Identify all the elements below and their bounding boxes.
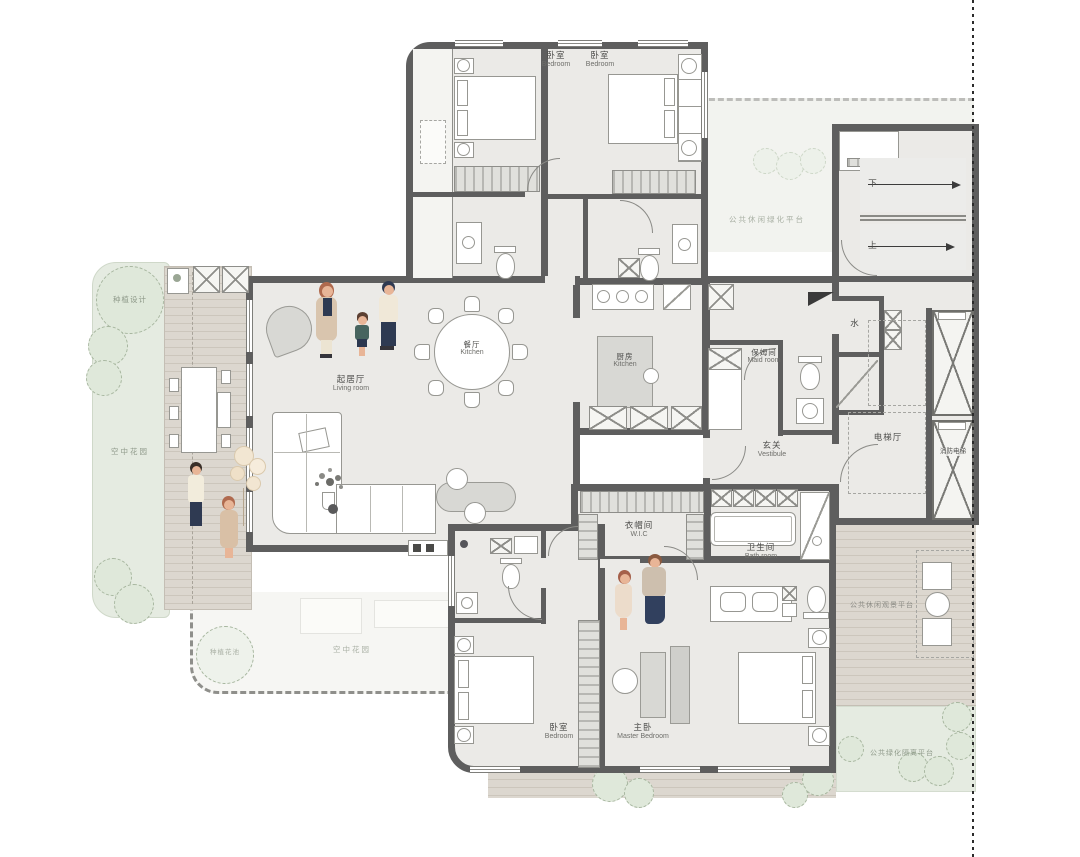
floor-plan: 公共休闲绿化平台 种植设计 空中花园 种植花池 空中花园 公共休闲观景平台 公共… [0, 0, 1080, 857]
label-garden-left: 空中花园 [98, 446, 162, 457]
label-fire-elevator: 消防电梯 [938, 448, 968, 456]
sofa-cushion-line [402, 486, 403, 532]
label-bath-cn: 卫生间 [747, 542, 776, 552]
outdoor-table-ext [217, 392, 231, 428]
closet-cell [711, 489, 732, 507]
opening [571, 318, 582, 402]
label-garden-bottom: 空中花园 [326, 644, 378, 655]
desk-shelf [670, 646, 690, 724]
dining-chair [428, 380, 444, 396]
tree [942, 702, 972, 732]
label-vestibule-en: Vestibule [740, 451, 804, 460]
dining-chair [464, 392, 480, 408]
wardrobe [580, 491, 704, 513]
stair-label-up: 上 [866, 240, 880, 251]
dining-chair [498, 308, 514, 324]
label-master-en: Master Bedroom [598, 733, 688, 742]
outdoor-chair [221, 370, 231, 384]
toilet [496, 253, 515, 279]
label-dining-en: Kitchen [444, 349, 500, 358]
deck-chair [922, 562, 952, 590]
wall [448, 618, 546, 623]
sink [462, 236, 475, 249]
dried-plant [230, 466, 245, 481]
person-father-shirt [379, 295, 398, 323]
person-wife-legs [620, 618, 627, 630]
fridge [708, 284, 734, 310]
pillow [457, 80, 468, 106]
label-vestibule-cn: 玄关 [762, 440, 781, 450]
tree [946, 732, 974, 760]
label-wic-cn: 衣帽间 [625, 520, 654, 530]
label-green-bottom-right: 公共绿化隔离平台 [862, 748, 942, 758]
person-father-head [384, 285, 394, 295]
pillow [664, 78, 675, 106]
laundry-unit [782, 586, 797, 601]
window [640, 766, 700, 773]
island-sink [643, 368, 659, 384]
wall [413, 192, 525, 197]
person-mother-shoes [320, 354, 332, 358]
person-man2-head [192, 466, 201, 475]
pillow [802, 656, 813, 684]
cabinet [618, 258, 640, 278]
tree [838, 736, 864, 762]
wall [703, 340, 783, 345]
pillow [458, 660, 469, 688]
window [718, 766, 790, 773]
person-husband-shirt [642, 567, 666, 597]
person-man2-pants [190, 502, 202, 526]
window [448, 556, 455, 606]
wardrobe [686, 514, 704, 560]
elevator-door [938, 312, 966, 320]
wardrobe-divider [578, 620, 600, 768]
outdoor-table [181, 367, 217, 453]
dried-plant [246, 476, 261, 491]
window [246, 364, 253, 416]
dining-chair [464, 296, 480, 312]
stair-label-down: 下 [866, 178, 880, 189]
person-boy-shorts [357, 339, 367, 347]
plant-icon [326, 478, 334, 486]
lamp [812, 728, 827, 743]
section-cut-line [972, 0, 974, 857]
pillow [802, 690, 813, 718]
elevator-shaft-fire [932, 420, 974, 520]
opening [545, 276, 575, 285]
label-bedroom3-en: Bedroom [530, 733, 588, 742]
outdoor-chair [169, 434, 179, 448]
stair-arrow [868, 184, 952, 185]
window [455, 40, 503, 47]
label-maid: 保姆间 Maid room [734, 348, 794, 366]
stair-landing-line [860, 215, 966, 217]
label-kitchen: 厨房 Kitchen [597, 352, 653, 370]
label-maid-cn: 保姆间 [751, 348, 777, 357]
dining-chair [414, 344, 430, 360]
wall [778, 430, 839, 435]
label-bedroom2-cn: 卧室 [590, 50, 609, 60]
person-boy-legs [359, 347, 365, 356]
lamp [681, 140, 697, 156]
outdoor-chair [169, 406, 179, 420]
closet-cell [755, 489, 776, 507]
entry-marker [808, 292, 834, 306]
wall [548, 194, 703, 199]
appliance-unit [426, 544, 434, 552]
label-living: 起居厅 Living room [316, 374, 386, 393]
label-kitchen-en: Kitchen [597, 361, 653, 370]
opening [541, 558, 546, 588]
desk [640, 652, 666, 718]
tree [114, 584, 154, 624]
sofa-cushion-line [306, 414, 307, 532]
window [701, 72, 708, 138]
floor-mat [589, 406, 627, 430]
planter-box [222, 266, 249, 293]
label-bedroom2-en: Bedroom [572, 61, 628, 70]
bathtub [710, 512, 796, 546]
person-mother-legs [321, 340, 332, 354]
person-boy-shirt [355, 325, 369, 340]
toilet [807, 586, 826, 613]
tree [86, 360, 122, 396]
person-mother-top [323, 298, 332, 316]
wardrobe [612, 170, 696, 194]
side-table [464, 502, 486, 524]
label-elevator-hall: 电梯厅 [856, 432, 920, 443]
stair-arrow-head [946, 243, 955, 251]
label-green-top-right: 公共休闲绿化平台 [722, 214, 812, 225]
burner [635, 290, 648, 303]
desk-chair [612, 668, 638, 694]
window [470, 766, 520, 773]
appliance [663, 284, 691, 310]
dried-plant [249, 458, 266, 475]
plant-stem [243, 488, 244, 526]
sofa-cushion-line [370, 486, 371, 532]
label-bath-en: Bath room [728, 553, 794, 562]
label-dining-cn: 餐厅 [464, 340, 481, 349]
shower [800, 492, 830, 560]
toilet-tank [798, 356, 822, 363]
lamp [681, 58, 697, 74]
toilet [800, 363, 820, 390]
sofa-cushion-line [274, 452, 340, 453]
appliance-unit [413, 544, 421, 552]
tree [800, 148, 826, 174]
label-water: 水 [846, 318, 864, 329]
elevator-shaft [932, 310, 974, 416]
floor-mat [671, 406, 702, 430]
person-father-pants [381, 322, 396, 346]
label-wic: 衣帽间 W.I.C [606, 520, 672, 539]
opening [600, 559, 640, 568]
pillow [457, 110, 468, 136]
ghost-furniture [300, 598, 362, 634]
lamp [457, 638, 471, 652]
wall [583, 199, 588, 283]
label-master-cn: 主卧 [633, 722, 652, 732]
label-bedroom3: 卧室 Bedroom [530, 722, 588, 741]
lamp [457, 59, 470, 72]
label-bath: 卫生间 Bath room [728, 542, 794, 561]
shower-drain [812, 536, 822, 546]
label-master: 主卧 Master Bedroom [598, 722, 688, 741]
label-living-en: Living room [316, 385, 386, 394]
label-bedroom2: 卧室 Bedroom [572, 50, 628, 69]
person-husband-pants [645, 596, 665, 624]
cabinet [782, 603, 797, 617]
label-planting-bottom: 种植花池 [202, 646, 248, 656]
label-bedroom1-cn: 卧室 [546, 50, 565, 60]
toilet [640, 255, 659, 281]
stair-landing-line [860, 219, 966, 221]
label-kitchen-cn: 厨房 [617, 352, 634, 361]
person-father-shoes [380, 346, 394, 350]
basin [802, 403, 818, 419]
opening [703, 438, 712, 478]
tree [624, 778, 654, 808]
equipment-box [420, 120, 446, 164]
floor-mat [630, 406, 668, 430]
label-maid-en: Maid room [734, 357, 794, 366]
window [246, 300, 253, 352]
label-planting-top: 种植设计 [99, 294, 161, 305]
dining-chair [498, 380, 514, 396]
window [558, 40, 602, 47]
toilet-tank [494, 246, 516, 253]
label-deck-right: 公共休闲观景平台 [846, 600, 918, 610]
person-mother-head [322, 286, 333, 297]
elevator-hall-zone [868, 320, 926, 406]
person-woman2-coat [220, 510, 238, 548]
person-wife-dress [615, 584, 632, 618]
pillow [458, 692, 469, 720]
elevator-door [938, 422, 966, 430]
closet-cell [733, 489, 754, 507]
dining-chair [428, 308, 444, 324]
person-boy-head [358, 316, 367, 325]
wall [832, 296, 884, 301]
burner [616, 290, 629, 303]
lamp [812, 630, 827, 645]
outdoor-chair [169, 378, 179, 392]
label-bedroom3-cn: 卧室 [549, 722, 568, 732]
deck-chair [922, 618, 952, 646]
person-man2-top [188, 475, 204, 503]
cabinet [490, 538, 512, 554]
label-living-cn: 起居厅 [337, 374, 366, 384]
side-table [446, 468, 468, 490]
sofa-seat [336, 484, 436, 534]
shower-head [460, 540, 468, 548]
tree [782, 782, 808, 808]
sink [752, 592, 778, 612]
stool [328, 504, 338, 514]
planter-plant [173, 274, 181, 282]
label-vestibule: 玄关 Vestibule [740, 440, 804, 459]
tree [924, 756, 954, 786]
shower-drain [461, 597, 473, 609]
wall [838, 276, 979, 282]
lamp [457, 728, 471, 742]
person-woman2-legs [225, 548, 233, 558]
stair-arrow-head [952, 181, 961, 189]
deck-table [925, 592, 950, 617]
window [246, 492, 253, 532]
label-wic-en: W.I.C [606, 531, 672, 540]
tree [753, 148, 779, 174]
wardrobe [578, 514, 598, 560]
outdoor-chair [221, 434, 231, 448]
toilet-tank [803, 612, 829, 619]
person-woman2-head [224, 500, 234, 510]
burner [597, 290, 610, 303]
planter-box [193, 266, 220, 293]
vanity [514, 536, 538, 554]
dining-chair [512, 344, 528, 360]
sink [678, 238, 691, 251]
toilet-tank [638, 248, 660, 255]
lamp [457, 143, 470, 156]
pillow [664, 110, 675, 138]
person-wife-head [620, 574, 630, 584]
window [638, 40, 688, 47]
label-dining: 餐厅 Kitchen [444, 340, 500, 358]
sink [720, 592, 746, 612]
closet-cell [777, 489, 798, 507]
